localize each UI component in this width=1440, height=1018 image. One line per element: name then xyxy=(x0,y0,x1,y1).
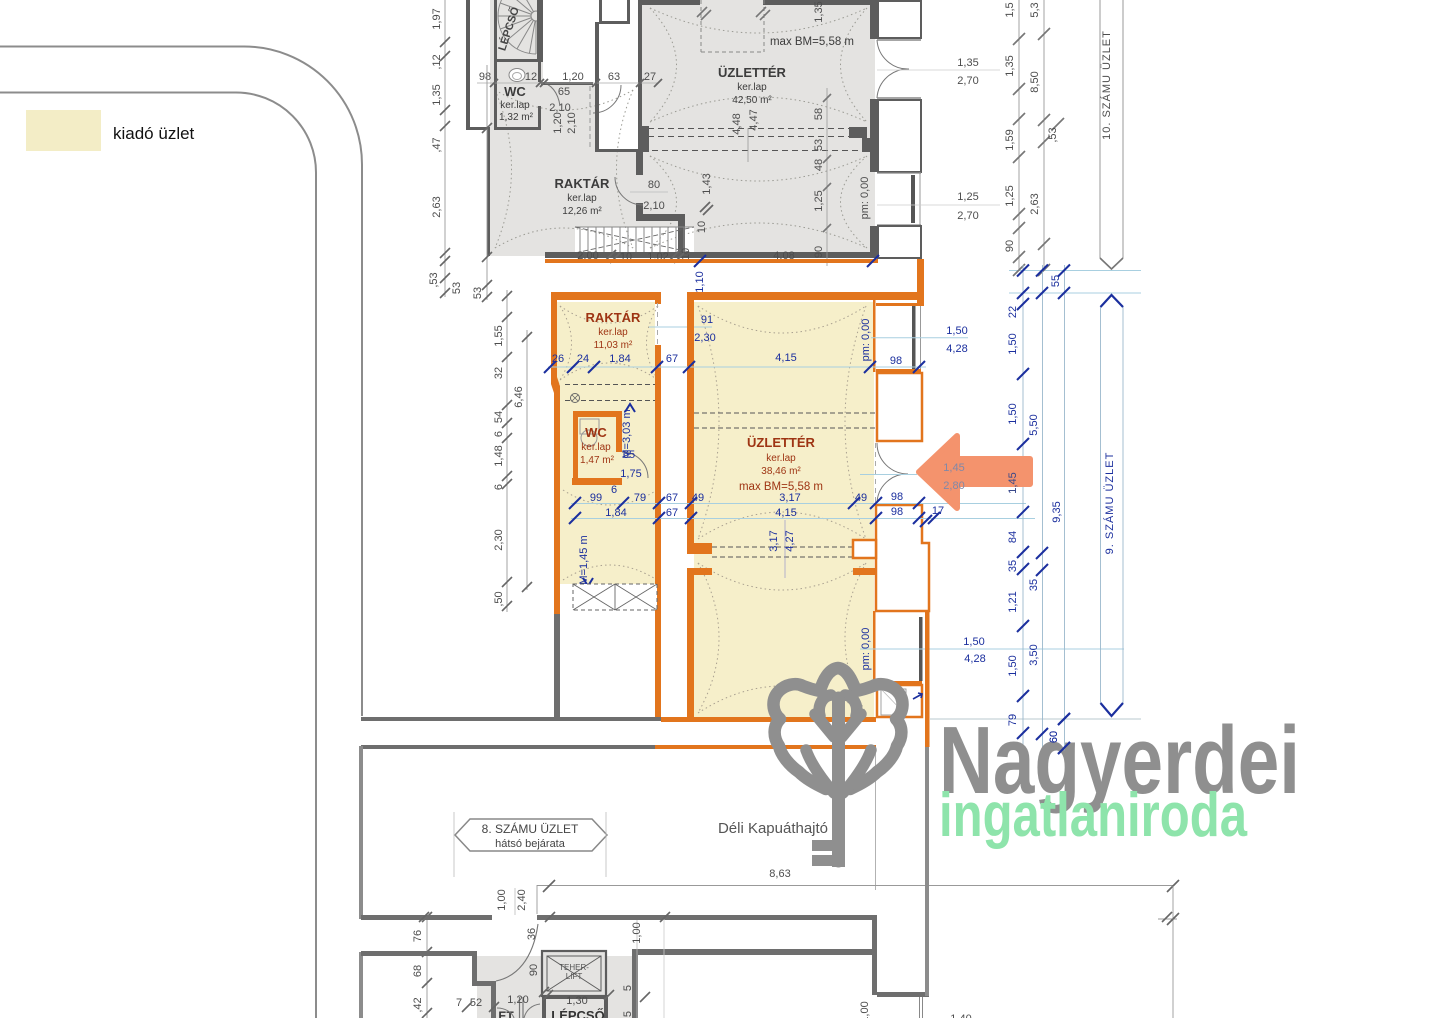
svg-text:12,26 m²: 12,26 m² xyxy=(562,206,602,217)
svg-text:90: 90 xyxy=(1004,240,1016,252)
svg-text:6: 6 xyxy=(611,484,617,496)
svg-text:kiadó üzlet: kiadó üzlet xyxy=(113,124,195,143)
svg-text:98: 98 xyxy=(891,506,903,518)
svg-text:LIFT: LIFT xyxy=(566,972,583,981)
svg-text:9. SZÁMU ÜZLET: 9. SZÁMU ÜZLET xyxy=(1103,452,1116,555)
svg-text:53: 53 xyxy=(451,282,463,294)
svg-text:1,59: 1,59 xyxy=(1004,129,1016,150)
svg-text:pm: 0,00: pm: 0,00 xyxy=(860,319,872,362)
svg-text:1,30: 1,30 xyxy=(566,995,587,1007)
svg-text:max BM=5,58 m: max BM=5,58 m xyxy=(770,36,854,48)
svg-text:1,35: 1,35 xyxy=(431,84,443,105)
svg-text:48: 48 xyxy=(813,159,825,171)
svg-text:91: 91 xyxy=(701,314,713,326)
svg-text:3,17: 3,17 xyxy=(768,530,780,551)
svg-text:98: 98 xyxy=(479,71,491,83)
svg-text:42,50 m²: 42,50 m² xyxy=(732,95,772,106)
svg-text:55: 55 xyxy=(1050,275,1062,287)
svg-text:1,00: 1,00 xyxy=(859,1001,871,1018)
svg-text:pm: 0,00: pm: 0,00 xyxy=(859,177,871,220)
svg-text:60: 60 xyxy=(1048,731,1060,743)
svg-text:49: 49 xyxy=(692,492,704,504)
svg-text:53: 53 xyxy=(472,287,484,299)
svg-text:hátsó bejárata: hátsó bejárata xyxy=(495,838,566,850)
svg-text:6,46: 6,46 xyxy=(513,386,525,407)
svg-text:4,48: 4,48 xyxy=(731,113,743,134)
svg-text:WC: WC xyxy=(504,84,526,99)
svg-text:6: 6 xyxy=(493,431,505,437)
svg-text:7: 7 xyxy=(456,997,462,1009)
svg-text:1,43: 1,43 xyxy=(701,173,713,194)
svg-text:36: 36 xyxy=(526,928,538,940)
svg-text:27: 27 xyxy=(644,71,656,83)
svg-text:1,00: 1,00 xyxy=(496,889,508,910)
svg-text:ÜZLETTÉR: ÜZLETTÉR xyxy=(747,435,815,450)
svg-text:1,45: 1,45 xyxy=(1007,472,1019,493)
svg-text:,47: ,47 xyxy=(431,137,443,152)
svg-text:2,70: 2,70 xyxy=(957,75,978,87)
svg-text:,12: ,12 xyxy=(431,54,443,69)
svg-text:2,63: 2,63 xyxy=(1029,193,1041,214)
svg-text:10: 10 xyxy=(696,221,708,233)
svg-text:1,50: 1,50 xyxy=(963,636,984,648)
svg-text:2,30: 2,30 xyxy=(493,529,505,550)
svg-text:4,15: 4,15 xyxy=(775,507,796,519)
svg-text:WC: WC xyxy=(585,425,607,440)
svg-text:17: 17 xyxy=(932,505,944,517)
svg-text:8,63: 8,63 xyxy=(769,868,790,880)
svg-text:ÜZLETTÉR: ÜZLETTÉR xyxy=(718,65,786,80)
svg-text:90: 90 xyxy=(813,246,825,258)
svg-text:76: 76 xyxy=(412,930,424,942)
svg-text:4,47: 4,47 xyxy=(748,109,760,130)
svg-text:1,50: 1,50 xyxy=(946,325,967,337)
svg-text:TEHER-: TEHER- xyxy=(559,963,589,972)
svg-text:24: 24 xyxy=(577,353,589,365)
svg-text:5,50: 5,50 xyxy=(1028,414,1040,435)
svg-text:54: 54 xyxy=(493,411,505,423)
svg-text:35: 35 xyxy=(1028,579,1040,591)
svg-text:M=3,03 m: M=3,03 m xyxy=(621,409,633,458)
svg-text:80: 80 xyxy=(648,179,660,191)
svg-text:98: 98 xyxy=(891,491,903,503)
svg-text:1,25: 1,25 xyxy=(1004,185,1016,206)
svg-text:1,47 m²: 1,47 m² xyxy=(580,455,615,466)
svg-text:4,27: 4,27 xyxy=(784,530,796,551)
svg-text:90: 90 xyxy=(528,964,540,976)
svg-text:63: 63 xyxy=(608,71,620,83)
svg-text:ker.lap: ker.lap xyxy=(598,327,628,338)
svg-text:,50: ,50 xyxy=(493,591,505,606)
svg-text:2,70: 2,70 xyxy=(957,210,978,222)
svg-text:9,35: 9,35 xyxy=(1051,501,1063,522)
svg-text:1,55: 1,55 xyxy=(493,325,505,346)
svg-text:1,50: 1,50 xyxy=(1007,333,1019,354)
svg-text:1,32 m²: 1,32 m² xyxy=(499,112,534,123)
svg-text:38,46 m²: 38,46 m² xyxy=(761,466,801,477)
svg-text:1,21: 1,21 xyxy=(1007,591,1019,612)
svg-text:2,10: 2,10 xyxy=(549,102,570,114)
svg-text:2,80: 2,80 xyxy=(943,480,964,492)
svg-text:1,20: 1,20 xyxy=(552,112,564,133)
svg-text:ker.lap: ker.lap xyxy=(737,82,767,93)
svg-text:10. SZÁMU ÜZLET: 10. SZÁMU ÜZLET xyxy=(1100,30,1113,140)
svg-text:ker.lap: ker.lap xyxy=(581,442,611,453)
svg-text:67: 67 xyxy=(666,492,678,504)
svg-text:4,28: 4,28 xyxy=(946,343,967,355)
svg-text:32: 32 xyxy=(493,367,505,379)
svg-text:,53: ,53 xyxy=(1047,127,1059,142)
svg-text:1,35: 1,35 xyxy=(957,57,978,69)
svg-text:65: 65 xyxy=(558,86,570,98)
svg-text:98: 98 xyxy=(890,355,902,367)
svg-text:RAKTÁR: RAKTÁR xyxy=(555,176,610,191)
svg-text:1,25: 1,25 xyxy=(813,190,825,211)
svg-text:1,84: 1,84 xyxy=(605,507,626,519)
svg-text:LÉPCSŐ: LÉPCSŐ xyxy=(551,1008,604,1018)
svg-text:5: 5 xyxy=(622,1011,634,1017)
svg-text:5: 5 xyxy=(622,985,634,991)
svg-text:1,45: 1,45 xyxy=(943,462,964,474)
svg-text:11,03 m²: 11,03 m² xyxy=(594,340,633,351)
svg-text:2,40: 2,40 xyxy=(516,889,528,910)
svg-text:,42: ,42 xyxy=(412,997,424,1012)
svg-text:2,10: 2,10 xyxy=(566,112,578,133)
svg-text:ker.lap: ker.lap xyxy=(766,453,796,464)
svg-text:26: 26 xyxy=(552,353,564,365)
svg-text:1,48: 1,48 xyxy=(493,445,505,466)
svg-text:1,20: 1,20 xyxy=(562,71,583,83)
svg-text:,53: ,53 xyxy=(428,272,440,287)
svg-text:68: 68 xyxy=(412,965,424,977)
svg-text:ingatlaniroda: ingatlaniroda xyxy=(939,781,1247,850)
svg-text:ker.lap: ker.lap xyxy=(500,100,530,111)
svg-text:1,50: 1,50 xyxy=(1007,403,1019,424)
svg-text:Déli Kapuáthajtó: Déli Kapuáthajtó xyxy=(718,820,828,837)
svg-text:84: 84 xyxy=(1007,531,1019,543)
svg-text:67: 67 xyxy=(666,507,678,519)
svg-text:8,50: 8,50 xyxy=(1029,71,1041,92)
svg-text:2,30: 2,30 xyxy=(694,332,715,344)
svg-text:22: 22 xyxy=(1007,306,1019,318)
svg-text:35: 35 xyxy=(1007,560,1019,572)
svg-text:1,35: 1,35 xyxy=(813,1,825,22)
svg-text:2,63: 2,63 xyxy=(431,196,443,217)
svg-text:5,3: 5,3 xyxy=(1029,2,1041,17)
svg-text:RAKTÁR: RAKTÁR xyxy=(586,310,641,325)
svg-text:67: 67 xyxy=(666,353,678,365)
svg-text:1,10: 1,10 xyxy=(694,271,706,292)
svg-text:8. SZÁMU ÜZLET: 8. SZÁMU ÜZLET xyxy=(482,821,579,836)
svg-text:1,40: 1,40 xyxy=(950,1013,971,1018)
svg-text:4,28: 4,28 xyxy=(964,653,985,665)
svg-text:12: 12 xyxy=(525,71,537,83)
svg-text:53: 53 xyxy=(813,139,825,151)
svg-text:1,25: 1,25 xyxy=(957,191,978,203)
svg-text:58: 58 xyxy=(813,108,825,120)
svg-text:1,5: 1,5 xyxy=(1004,2,1016,17)
svg-text:1,97: 1,97 xyxy=(431,8,443,29)
svg-text:6: 6 xyxy=(493,484,505,490)
svg-text:3,50: 3,50 xyxy=(1028,644,1040,665)
svg-text:M=1,45 m: M=1,45 m xyxy=(578,535,590,584)
svg-text:1,00: 1,00 xyxy=(631,922,643,943)
svg-text:1,50: 1,50 xyxy=(1007,655,1019,676)
svg-text:4,15: 4,15 xyxy=(775,352,796,364)
svg-text:1,84: 1,84 xyxy=(609,353,630,365)
svg-text:1,75: 1,75 xyxy=(620,468,641,480)
svg-text:49: 49 xyxy=(855,492,867,504)
svg-text:1,20: 1,20 xyxy=(507,994,528,1006)
svg-text:99: 99 xyxy=(590,492,602,504)
svg-text:79: 79 xyxy=(634,492,646,504)
svg-text:ker.lap: ker.lap xyxy=(567,193,597,204)
svg-text:1,35: 1,35 xyxy=(1004,55,1016,76)
svg-text:2,10: 2,10 xyxy=(643,200,664,212)
svg-text:3,17: 3,17 xyxy=(779,492,800,504)
